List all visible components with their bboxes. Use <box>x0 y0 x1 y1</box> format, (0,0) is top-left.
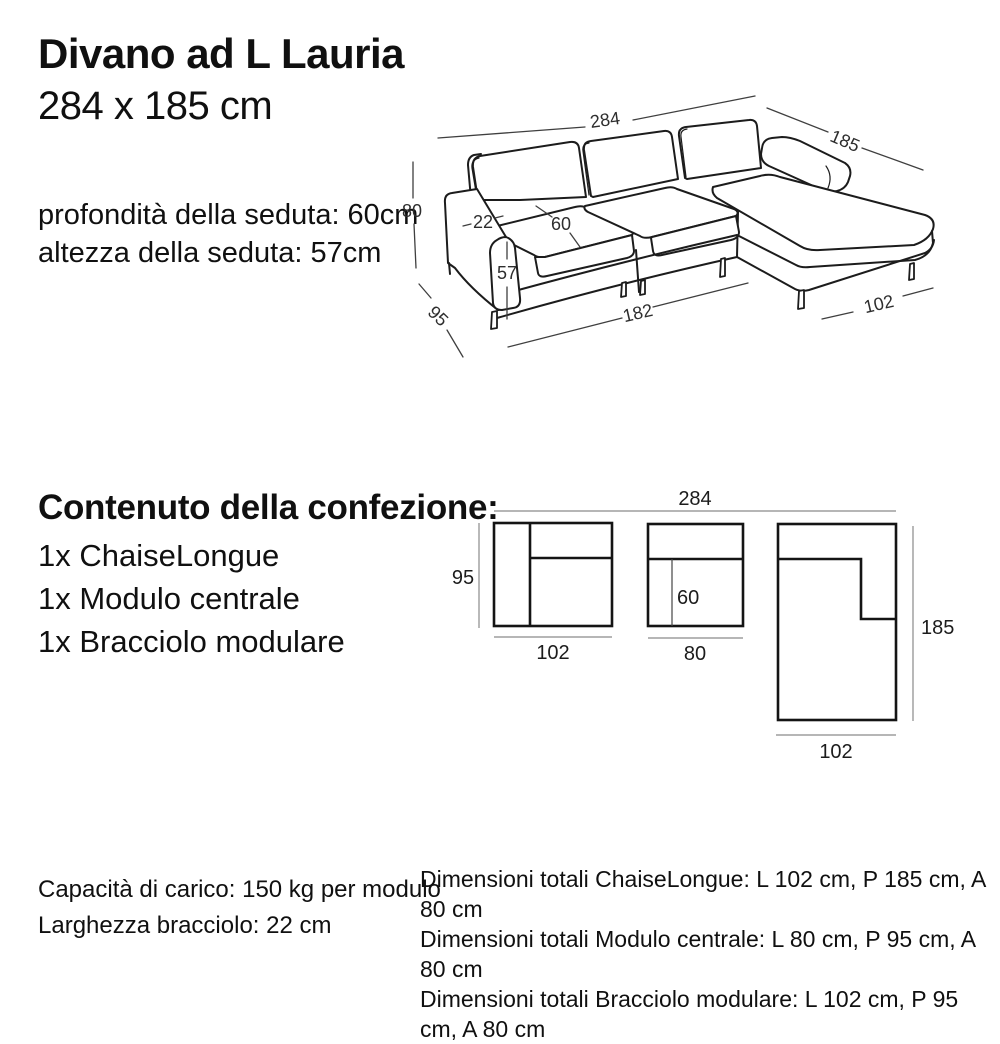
iso-dim-seats-width: 182 <box>621 300 655 326</box>
iso-dim-arm-width: 22 <box>473 212 493 232</box>
sofa-leg <box>720 258 725 277</box>
iso-dim-module-depth: 95 <box>424 302 452 330</box>
tv-module-chaise: 185 102 <box>776 524 954 763</box>
tv-dim-chaise-depth: 185 <box>921 617 954 639</box>
iso-dim-seat-height: 57 <box>497 263 517 283</box>
isometric-sofa-drawing: 284 185 80 95 22 60 57 182 102 <box>402 96 934 357</box>
back-cushion-right <box>679 120 761 179</box>
iso-dim-seat-depth: 60 <box>551 214 571 234</box>
sofa-leg <box>491 311 497 329</box>
back-cushion-middle <box>584 131 678 197</box>
tv-module-centrale: 60 80 <box>648 524 743 665</box>
sofa-leg <box>640 280 645 295</box>
sofa-leg <box>621 282 626 297</box>
iso-dim-chaise-width: 102 <box>862 291 896 317</box>
tv-dim-centrale-width: 80 <box>684 643 706 665</box>
iso-dim-total-height: 80 <box>402 201 422 221</box>
iso-dim-total-width: 284 <box>589 108 622 132</box>
tv-dim-bracciolo-width: 102 <box>536 642 569 664</box>
back-cushion-left <box>473 142 586 200</box>
sofa-leg <box>798 290 804 309</box>
tv-dim-seat-depth: 60 <box>677 587 699 609</box>
tv-dim-total-width: 284 <box>678 488 711 510</box>
tv-module-bracciolo: 95 102 <box>452 523 612 664</box>
iso-dim-total-depth: 185 <box>827 126 862 156</box>
tv-dim-module-depth: 95 <box>452 567 474 589</box>
tv-dim-chaise-width: 102 <box>819 741 852 763</box>
diagrams-canvas: 284 185 80 95 22 60 57 182 102 <box>0 0 1000 1000</box>
sofa-leg <box>909 263 914 280</box>
top-view-diagram: 284 95 102 60 80 185 102 <box>452 488 955 763</box>
